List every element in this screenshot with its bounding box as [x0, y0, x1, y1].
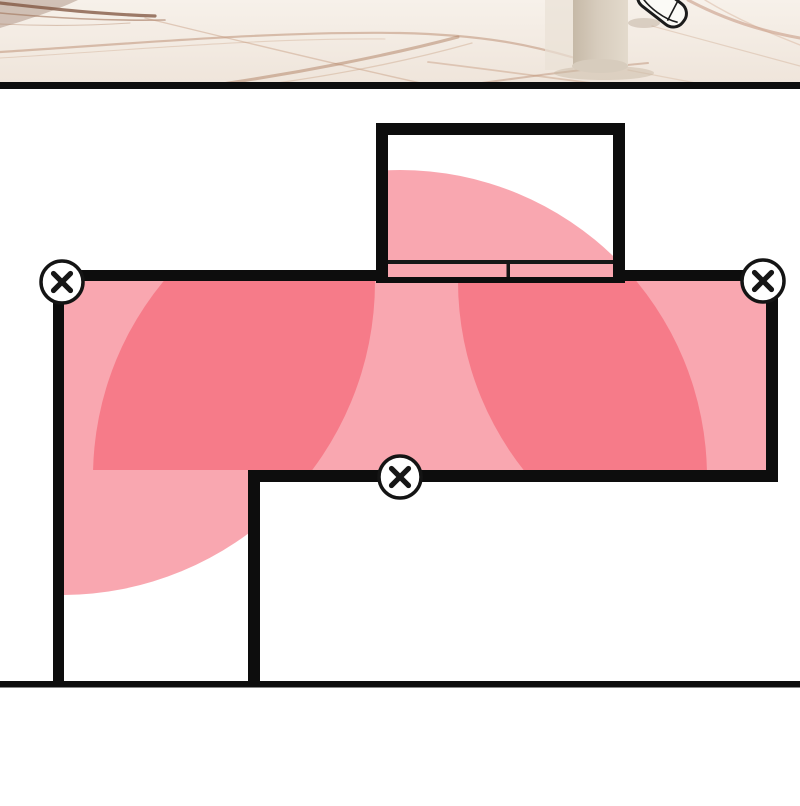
corridor-wall — [248, 470, 260, 687]
disabled-camera-right-marker — [742, 260, 784, 302]
panel-border-top — [0, 82, 800, 89]
comic-page — [0, 0, 800, 806]
top-wall-left — [53, 270, 378, 281]
disabled-camera-bottom-marker — [379, 456, 421, 498]
closet-top-wall — [376, 123, 625, 135]
closet-sliding-door — [376, 260, 625, 283]
panel-border-bottom — [0, 681, 800, 688]
door-track-top-line — [388, 260, 613, 264]
door-track-bottom-bar — [376, 277, 625, 283]
shoe-shadow — [628, 18, 660, 28]
closet-right-wall — [613, 123, 625, 283]
left-wall — [53, 270, 64, 687]
disabled-camera-left-marker — [41, 261, 83, 303]
closet-left-wall — [376, 123, 388, 283]
pillar-back-shading — [545, 0, 573, 70]
pillar — [573, 0, 628, 66]
pillar-base — [572, 59, 628, 73]
door-panel-divider — [507, 260, 511, 279]
floorplan-scene-svg — [0, 0, 800, 806]
bottom-wall-main — [248, 470, 778, 482]
